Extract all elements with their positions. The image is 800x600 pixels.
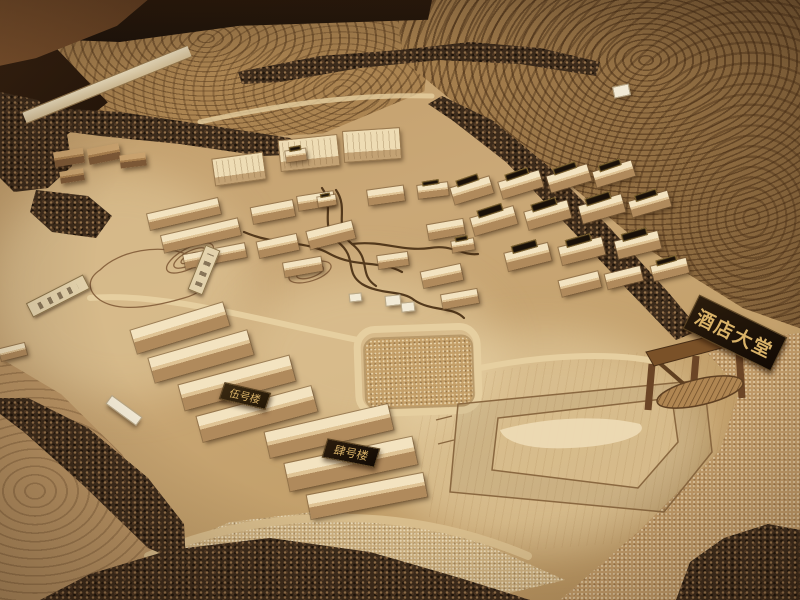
model-structure-white (402, 302, 415, 311)
model-structure-white (350, 293, 362, 301)
model-structure-white (386, 295, 401, 305)
model-building (343, 128, 401, 162)
architectural-model-photo: 酒店大堂 伍号楼 肆号楼 (0, 0, 800, 600)
